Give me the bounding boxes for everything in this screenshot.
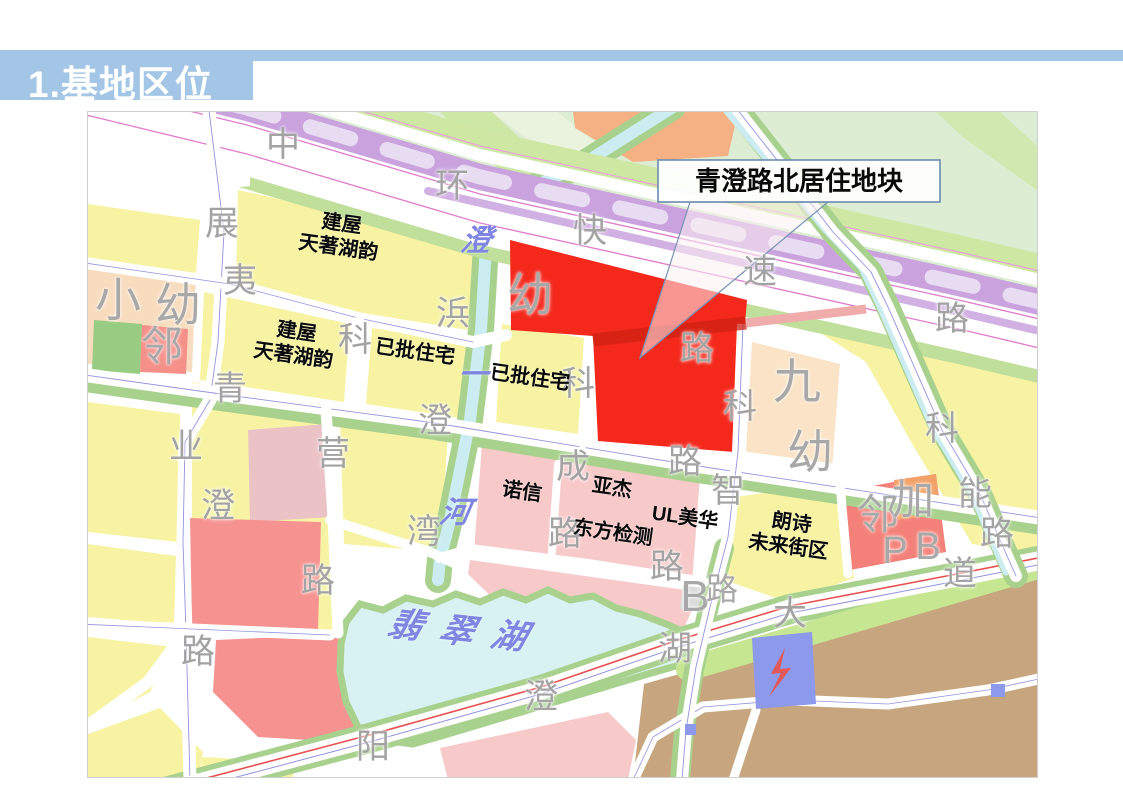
road-label: 营 — [316, 437, 350, 473]
water-label: 河 — [437, 497, 473, 529]
facility-label: B — [915, 528, 940, 568]
callout-label: 青澄路北居住地块 — [658, 160, 940, 202]
road-label: 能 — [958, 477, 992, 513]
road-label: 速 — [743, 255, 777, 291]
road-label: 大 — [773, 597, 807, 633]
road-label: 浜 — [436, 297, 470, 333]
site-label: 建屋 天著湖韵 — [297, 207, 383, 266]
road-label: 智 — [711, 474, 745, 510]
site-label: 已批住宅 — [489, 361, 572, 396]
road-label: 澄 — [524, 680, 558, 716]
road-label: 科 — [723, 390, 757, 426]
facility-label: 邻 — [857, 493, 899, 537]
facility-label: 路 — [706, 573, 738, 607]
road-label: 成 — [556, 450, 590, 486]
road-label: 路 — [668, 445, 702, 481]
road-label: 路 — [181, 635, 215, 671]
road-label: 环 — [435, 169, 469, 205]
facility-label: 幼 — [507, 271, 553, 319]
facility-label: 幼 — [155, 281, 201, 329]
road-label: 科 — [925, 412, 959, 448]
site-label: 朗诗 未来街区 — [747, 506, 833, 565]
road-label: 澄 — [418, 404, 452, 440]
water-label: 一 — [455, 359, 491, 391]
road-label: 澄 — [201, 489, 235, 525]
water-label: 翡翠湖 — [383, 607, 548, 658]
road-label: 青 — [213, 372, 247, 408]
road-label: 路 — [980, 517, 1014, 553]
location-map: 中环快速路展夷浜科青澄路业澄营湾路路成路智科路科路大湖澄阳道科能路小幼邻幼九幼邻… — [88, 112, 1037, 777]
road-label: 湖 — [658, 632, 692, 668]
water-label: 澄 — [458, 225, 494, 257]
site-label: UL美华 — [650, 501, 719, 534]
road-label: 中 — [266, 128, 300, 164]
road-label: 科 — [561, 367, 595, 403]
road-label: 展 — [205, 207, 239, 243]
road-label: 夷 — [223, 264, 257, 300]
facility-label: 九 — [773, 358, 821, 408]
site-label: 亚杰 — [591, 473, 634, 502]
road-label: 道 — [943, 557, 977, 593]
road-label: 路 — [548, 517, 582, 553]
site-label: 诺信 — [501, 477, 544, 506]
road-label: 路 — [680, 332, 714, 368]
road-label: 路 — [301, 564, 335, 600]
road-label: 湾 — [407, 515, 441, 551]
site-label: 东方检测 — [572, 516, 655, 551]
facility-label: B — [680, 574, 709, 620]
road-label: 科 — [338, 323, 372, 359]
facility-label: P — [882, 532, 907, 572]
road-label: 快 — [573, 214, 607, 250]
road-label: 业 — [169, 430, 203, 466]
site-label: 建屋 天著湖韵 — [252, 315, 338, 374]
facility-label: 幼 — [787, 428, 833, 476]
facility-label: 小 — [95, 276, 141, 324]
road-label: 路 — [650, 550, 684, 586]
road-label: 路 — [935, 302, 969, 338]
facility-label: 邻 — [141, 325, 183, 369]
road-label: 阳 — [356, 730, 390, 766]
map-label-layer: 中环快速路展夷浜科青澄路业澄营湾路路成路智科路科路大湖澄阳道科能路小幼邻幼九幼邻… — [88, 112, 1037, 777]
page-title: 1.基地区位 — [28, 54, 213, 108]
facility-label: 加 — [892, 478, 934, 522]
site-label: 已批住宅 — [374, 335, 457, 370]
